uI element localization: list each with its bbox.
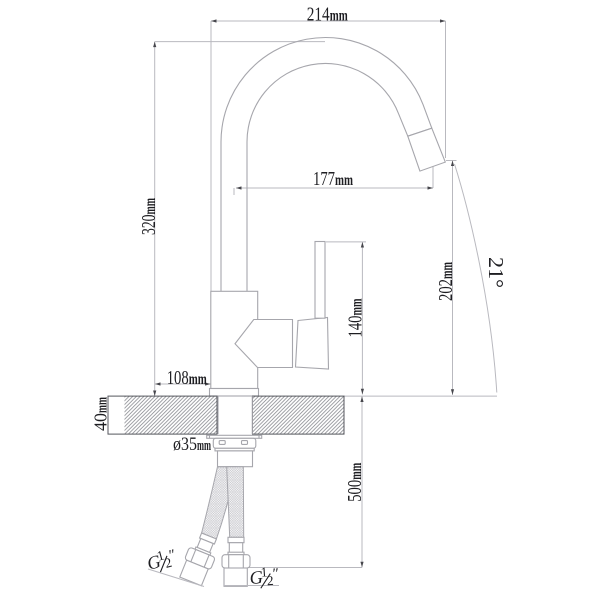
svg-text:mm: mm (335, 172, 353, 189)
svg-text:140: 140 (345, 316, 367, 338)
svg-text:202: 202 (435, 279, 457, 301)
svg-text:mm: mm (439, 262, 456, 279)
svg-text:mm: mm (197, 438, 211, 454)
svg-text:mm: mm (95, 397, 111, 413)
svg-text:500: 500 (344, 480, 366, 502)
svg-text:mm: mm (142, 198, 159, 215)
svg-text:177: 177 (313, 168, 335, 190)
svg-text:mm: mm (349, 298, 366, 315)
svg-text:ø35: ø35 (173, 434, 197, 455)
svg-text:21°: 21° (484, 257, 508, 288)
svg-text:mm: mm (189, 371, 207, 388)
svg-text:mm: mm (348, 462, 365, 479)
svg-text:40: 40 (91, 413, 111, 431)
svg-text:214: 214 (307, 4, 330, 26)
svg-text:108: 108 (167, 367, 189, 389)
svg-text:mm: mm (330, 8, 348, 25)
svg-text:320: 320 (138, 215, 160, 236)
